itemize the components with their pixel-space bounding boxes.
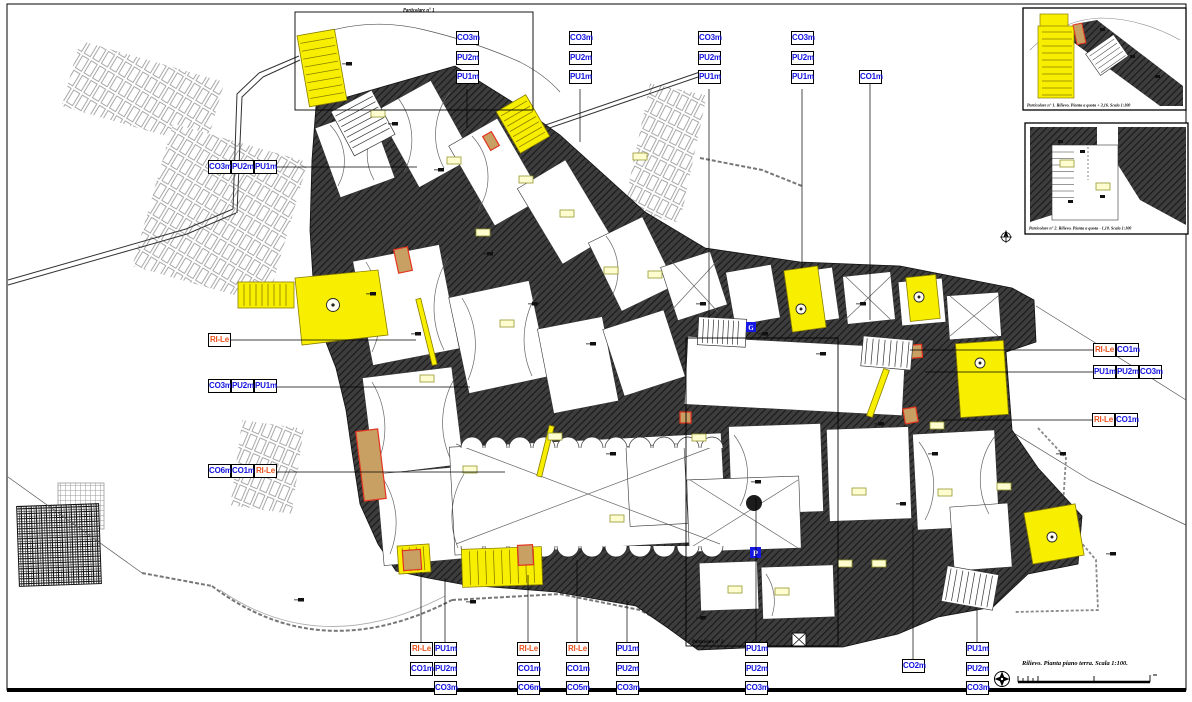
survey-code-tag: CO1m <box>231 464 254 478</box>
label-row-left-3: CO3m PU2m PU1m <box>208 379 277 393</box>
survey-code-tag: CO1m <box>566 662 589 676</box>
survey-code-tag: PU1m <box>569 70 592 84</box>
survey-code-tag: RI-Le <box>566 642 589 656</box>
svg-text:G: G <box>748 324 754 332</box>
survey-code-tag: PU1m <box>434 642 457 656</box>
label-row-left-2: RI-Le <box>208 333 231 347</box>
survey-code-tag: RI-Le <box>1093 343 1116 357</box>
floor-plan-drawing: P G Particolare n° 1 Particolare n° 2 <box>0 0 1192 702</box>
scale-bar <box>1018 675 1157 682</box>
north-arrow-icon <box>1000 231 1012 243</box>
label-row-left-1: CO3m PU2m PU1m <box>208 160 277 174</box>
label-column-top-3: CO3m PU2m PU1m <box>698 31 721 84</box>
detail-frame-1-label: Particolare n° 1 <box>403 9 435 14</box>
survey-code-tag: CO1m <box>859 70 882 84</box>
survey-code-tag: CO3m <box>698 31 721 45</box>
label-column-top-1: CO3m PU2m PU1m <box>456 31 479 84</box>
label-row-left-4: CO6m CO1m RI-Le <box>208 464 277 478</box>
courtyard-well <box>746 495 762 511</box>
survey-code-tag: PU1m <box>791 70 814 84</box>
label-column-top-5: CO1m <box>859 70 882 84</box>
label-column-bottom-1: RI-Le CO1m <box>410 642 433 676</box>
label-row-right-2: PU1m PU2m CO3m <box>1093 365 1162 379</box>
inset-2-caption: Particolare n° 2. Rilievo. Pianta a quot… <box>1029 226 1132 231</box>
svg-text:P: P <box>753 549 758 558</box>
survey-code-tag: CO1m <box>410 662 433 676</box>
inset-detail-1: Particolare n° 1. Rilievo. Pianta a quot… <box>1023 8 1186 110</box>
survey-code-tag: RI-Le <box>254 464 277 478</box>
drawing-sheet: { "sheet": { "captions": { "detail_frame… <box>0 0 1192 702</box>
survey-code-tag: RI-Le <box>208 333 231 347</box>
survey-code-tag: PU2m <box>745 662 768 676</box>
survey-code-tag: PU1m <box>966 642 989 656</box>
survey-code-tag: CO3m <box>208 379 231 393</box>
main-caption: Rilievo. Pianta piano terra. Scala 1:100… <box>1021 660 1128 667</box>
parking-icon: P <box>750 547 761 558</box>
survey-code-tag: CO3m <box>1139 365 1162 379</box>
survey-code-tag: CO1m <box>1115 413 1138 427</box>
utility-icon: G <box>746 322 756 332</box>
survey-code-tag: PU2m <box>456 51 479 65</box>
label-column-bottom-7: CO2m <box>902 659 925 673</box>
survey-code-tag: PU1m <box>698 70 721 84</box>
survey-code-tag: PU2m <box>569 51 592 65</box>
label-column-bottom-5: PU1m PU2m CO3m <box>616 642 639 695</box>
survey-code-tag: CO6m <box>208 464 231 478</box>
survey-code-tag: PU2m <box>231 160 254 174</box>
label-row-right-1: RI-Le CO1m <box>1093 343 1139 357</box>
crossed-box-icon <box>792 633 806 646</box>
survey-code-tag: PU1m <box>1093 365 1116 379</box>
survey-code-tag: PU1m <box>745 642 768 656</box>
survey-code-tag: PU2m <box>231 379 254 393</box>
label-row-right-3: RI-Le CO1m <box>1092 413 1138 427</box>
survey-code-tag: PU2m <box>698 51 721 65</box>
label-column-bottom-3: RI-Le CO1m CO6m <box>517 642 540 695</box>
survey-code-tag: PU1m <box>254 160 277 174</box>
detail-frame-2-label: Particolare n° 2 <box>692 640 724 645</box>
survey-code-tag: CO3m <box>434 681 457 695</box>
survey-code-tag: RI-Le <box>410 642 433 656</box>
survey-code-tag: PU1m <box>254 379 277 393</box>
survey-code-tag: CO3m <box>791 31 814 45</box>
survey-code-tag: PU2m <box>434 662 457 676</box>
survey-code-tag: CO6m <box>517 681 540 695</box>
survey-code-tag: CO3m <box>616 681 639 695</box>
label-column-bottom-6: PU1m PU2m CO3m <box>745 642 768 695</box>
survey-code-tag: CO3m <box>208 160 231 174</box>
label-column-top-2: CO3m PU2m PU1m <box>569 31 592 84</box>
survey-code-tag: CO3m <box>745 681 768 695</box>
inset-1-caption: Particolare n° 1. Rilievo. Pianta a quot… <box>1027 103 1131 108</box>
survey-code-tag: PU2m <box>616 662 639 676</box>
survey-code-tag: PU2m <box>791 51 814 65</box>
label-column-top-4: CO3m PU2m PU1m <box>791 31 814 84</box>
yellow-hall <box>295 270 388 345</box>
label-column-bottom-8: PU1m PU2m CO3m <box>966 642 989 695</box>
survey-code-tag: RI-Le <box>1092 413 1115 427</box>
survey-code-tag: CO3m <box>966 681 989 695</box>
survey-code-tag: RI-Le <box>517 642 540 656</box>
compass-rose-icon <box>995 672 1010 687</box>
survey-code-tag: CO1m <box>1116 343 1139 357</box>
survey-code-tag: PU2m <box>1116 365 1139 379</box>
survey-code-tag: PU2m <box>966 662 989 676</box>
label-column-bottom-4: RI-Le CO1m CO5m <box>566 642 589 695</box>
survey-code-tag: CO2m <box>902 659 925 673</box>
inset-detail-2: Particolare n° 2. Rilievo. Pianta a quot… <box>1025 123 1188 234</box>
survey-code-tag: PU1m <box>616 642 639 656</box>
survey-code-tag: CO3m <box>569 31 592 45</box>
survey-code-tag: CO5m <box>566 681 589 695</box>
survey-code-tag: CO3m <box>456 31 479 45</box>
label-column-bottom-2: PU1m PU2m CO3m <box>434 642 457 695</box>
survey-code-tag: CO1m <box>517 662 540 676</box>
survey-code-tag: PU1m <box>456 70 479 84</box>
